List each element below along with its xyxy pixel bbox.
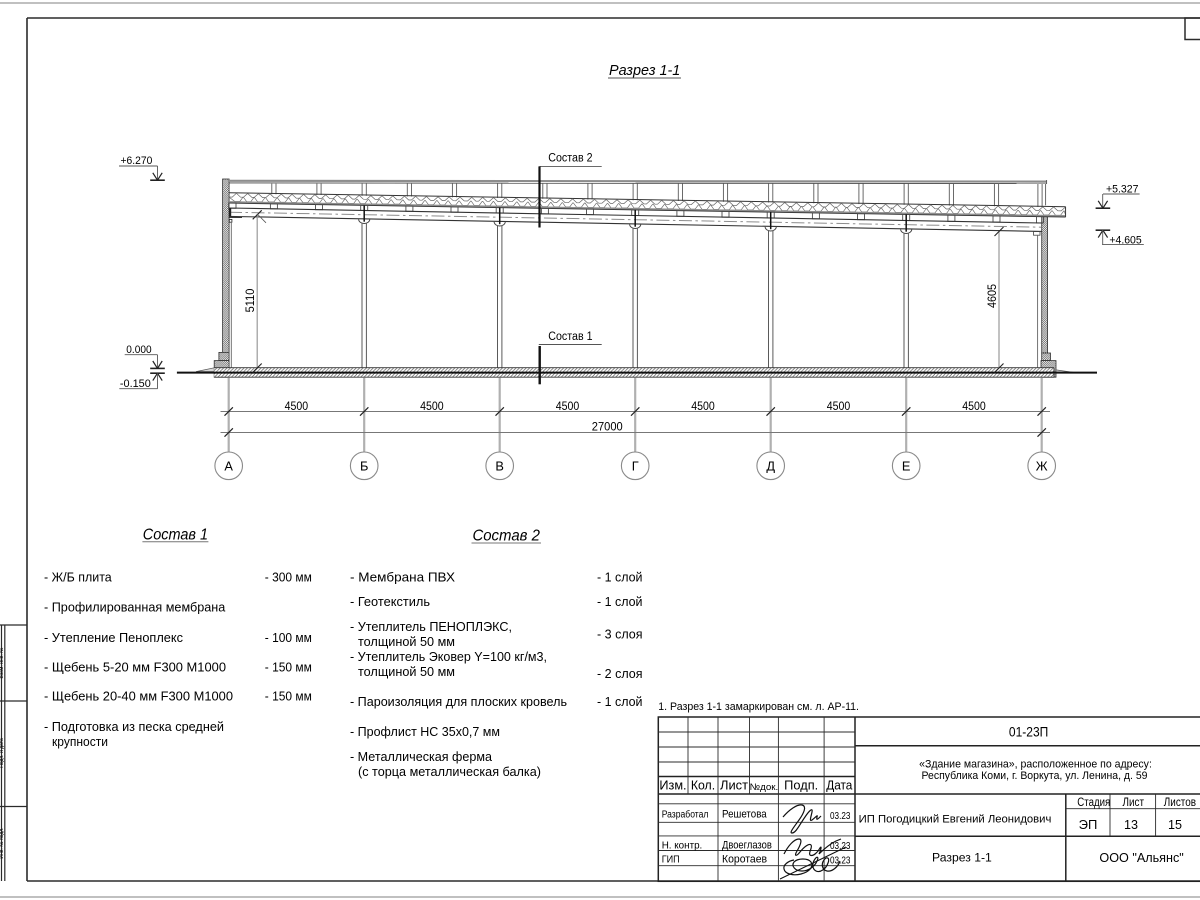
svg-text:4605: 4605 bbox=[985, 284, 999, 308]
svg-text:4500: 4500 bbox=[420, 399, 444, 413]
svg-text:- Щебень 20-40 мм F300 М1000: - Щебень 20-40 мм F300 М1000 bbox=[44, 689, 233, 704]
svg-text:Г: Г bbox=[632, 458, 639, 473]
svg-text:ЭП: ЭП bbox=[1079, 817, 1098, 832]
svg-text:Листов: Листов bbox=[1164, 797, 1196, 809]
svg-text:- 1 слой: - 1 слой bbox=[597, 569, 643, 584]
svg-text:«Здание магазина», расположенн: «Здание магазина», расположенное по адре… bbox=[919, 759, 1152, 771]
svg-text:- Утеплитель Эковер Y=100 кг/м: - Утеплитель Эковер Y=100 кг/м3, bbox=[350, 649, 547, 664]
svg-text:13: 13 bbox=[1124, 817, 1138, 832]
svg-text:Ж: Ж bbox=[1036, 458, 1048, 473]
svg-text:№док.: №док. bbox=[750, 782, 779, 793]
svg-text:03.23: 03.23 bbox=[830, 811, 851, 822]
svg-text:- 100 мм: - 100 мм bbox=[265, 630, 312, 645]
svg-text:- Профилированная мембрана: - Профилированная мембрана bbox=[44, 600, 226, 615]
svg-text:01-23П: 01-23П bbox=[1009, 725, 1048, 740]
svg-text:Разработал: Разработал bbox=[662, 809, 709, 821]
svg-text:Состав 1: Состав 1 bbox=[143, 526, 208, 543]
svg-text:Состав 2: Состав 2 bbox=[472, 528, 540, 545]
svg-text:4500: 4500 bbox=[962, 399, 986, 413]
svg-text:- Мембрана ПВХ: - Мембрана ПВХ bbox=[350, 569, 455, 584]
svg-text:Стадия: Стадия bbox=[1077, 797, 1110, 809]
svg-text:- 150 мм: - 150 мм bbox=[265, 689, 312, 704]
svg-text:-0.150: -0.150 bbox=[120, 378, 151, 390]
svg-text:Республика Коми, г. Воркута, у: Республика Коми, г. Воркута, ул. Ленина,… bbox=[922, 770, 1148, 782]
svg-text:ГИП: ГИП bbox=[662, 855, 680, 866]
svg-text:Разрез 1-1: Разрез 1-1 bbox=[932, 851, 992, 865]
svg-text:- Геотекстиль: - Геотекстиль bbox=[350, 594, 430, 609]
svg-text:крупности: крупности bbox=[52, 734, 108, 749]
svg-text:4500: 4500 bbox=[556, 399, 580, 413]
svg-text:Е: Е bbox=[902, 458, 911, 473]
svg-text:Подп.: Подп. bbox=[784, 779, 818, 793]
svg-text:Изм.: Изм. bbox=[659, 779, 686, 793]
svg-text:толщиной 50 мм: толщиной 50 мм bbox=[358, 634, 455, 649]
svg-text:1. Разрез 1-1 замаркирован см.: 1. Разрез 1-1 замаркирован см. л. АР-11. bbox=[658, 701, 859, 713]
svg-text:ООО "Альянс": ООО "Альянс" bbox=[1099, 851, 1183, 865]
svg-text:Разрез 1-1: Разрез 1-1 bbox=[609, 62, 680, 79]
svg-text:03.23: 03.23 bbox=[830, 855, 851, 866]
svg-text:- Профлист НС 35х0,7 мм: - Профлист НС 35х0,7 мм bbox=[350, 724, 500, 739]
svg-text:- Ж/Б плита: - Ж/Б плита bbox=[44, 569, 113, 584]
svg-text:- 2 слоя: - 2 слоя bbox=[597, 666, 643, 681]
svg-text:- Утеплитель ПЕНОПЛЭКС,: - Утеплитель ПЕНОПЛЭКС, bbox=[350, 619, 512, 634]
svg-text:Дата: Дата bbox=[826, 779, 853, 793]
svg-text:- 300 мм: - 300 мм bbox=[265, 569, 312, 584]
svg-text:Состав 1: Состав 1 bbox=[548, 331, 592, 343]
svg-text:Решетова: Решетова bbox=[722, 809, 767, 821]
svg-text:В: В bbox=[495, 458, 504, 473]
svg-text:ИП Погодицкий Евгений Леонидов: ИП Погодицкий Евгений Леонидович bbox=[859, 814, 1052, 826]
svg-text:+6.270: +6.270 bbox=[121, 155, 153, 167]
svg-text:Инв. № подл.: Инв. № подл. bbox=[0, 827, 5, 858]
svg-text:- Подготовка из песка средней: - Подготовка из песка средней bbox=[44, 719, 224, 734]
svg-text:5110: 5110 bbox=[243, 289, 257, 313]
svg-text:15: 15 bbox=[1168, 817, 1182, 832]
svg-text:Коротаев: Коротаев bbox=[722, 853, 767, 865]
svg-text:0.000: 0.000 bbox=[126, 344, 151, 356]
svg-text:- Утепление Пеноплекс: - Утепление Пеноплекс bbox=[44, 630, 184, 645]
svg-text:Лист: Лист bbox=[720, 779, 748, 793]
svg-text:- Щебень 5-20 мм F300 М1000: - Щебень 5-20 мм F300 М1000 bbox=[44, 660, 226, 675]
svg-text:Д: Д bbox=[766, 458, 775, 473]
svg-text:Лист: Лист bbox=[1123, 797, 1145, 809]
svg-text:А: А bbox=[224, 458, 233, 473]
svg-text:Состав 2: Состав 2 bbox=[548, 153, 592, 165]
svg-text:Взам. инв. №: Взам. инв. № bbox=[0, 648, 5, 679]
svg-text:+4.605: +4.605 bbox=[1109, 234, 1141, 246]
svg-text:Двоеглазов: Двоеглазов bbox=[722, 839, 772, 851]
svg-text:Кол.: Кол. bbox=[691, 779, 715, 793]
svg-text:- 3 слоя: - 3 слоя bbox=[597, 627, 643, 642]
svg-text:+5.327: +5.327 bbox=[1106, 183, 1139, 195]
svg-text:(с торца металлическая балка): (с торца металлическая балка) bbox=[358, 764, 541, 779]
svg-text:Н. контр.: Н. контр. bbox=[662, 841, 703, 852]
svg-text:4500: 4500 bbox=[827, 399, 851, 413]
svg-text:- 1 слой: - 1 слой bbox=[597, 594, 643, 609]
svg-text:- 150 мм: - 150 мм bbox=[265, 660, 312, 675]
svg-text:- Металлическая ферма: - Металлическая ферма bbox=[350, 749, 493, 764]
svg-text:- 1 слой: - 1 слой bbox=[597, 694, 643, 709]
svg-text:Б: Б bbox=[360, 458, 368, 473]
svg-text:толщиной 50 мм: толщиной 50 мм bbox=[358, 664, 455, 679]
svg-text:- Пароизоляция для плоских кро: - Пароизоляция для плоских кровель bbox=[350, 694, 567, 709]
svg-text:4500: 4500 bbox=[285, 399, 309, 413]
svg-text:27000: 27000 bbox=[592, 420, 623, 434]
svg-text:4500: 4500 bbox=[691, 399, 715, 413]
svg-text:Подп. и дата: Подп. и дата bbox=[0, 738, 5, 768]
